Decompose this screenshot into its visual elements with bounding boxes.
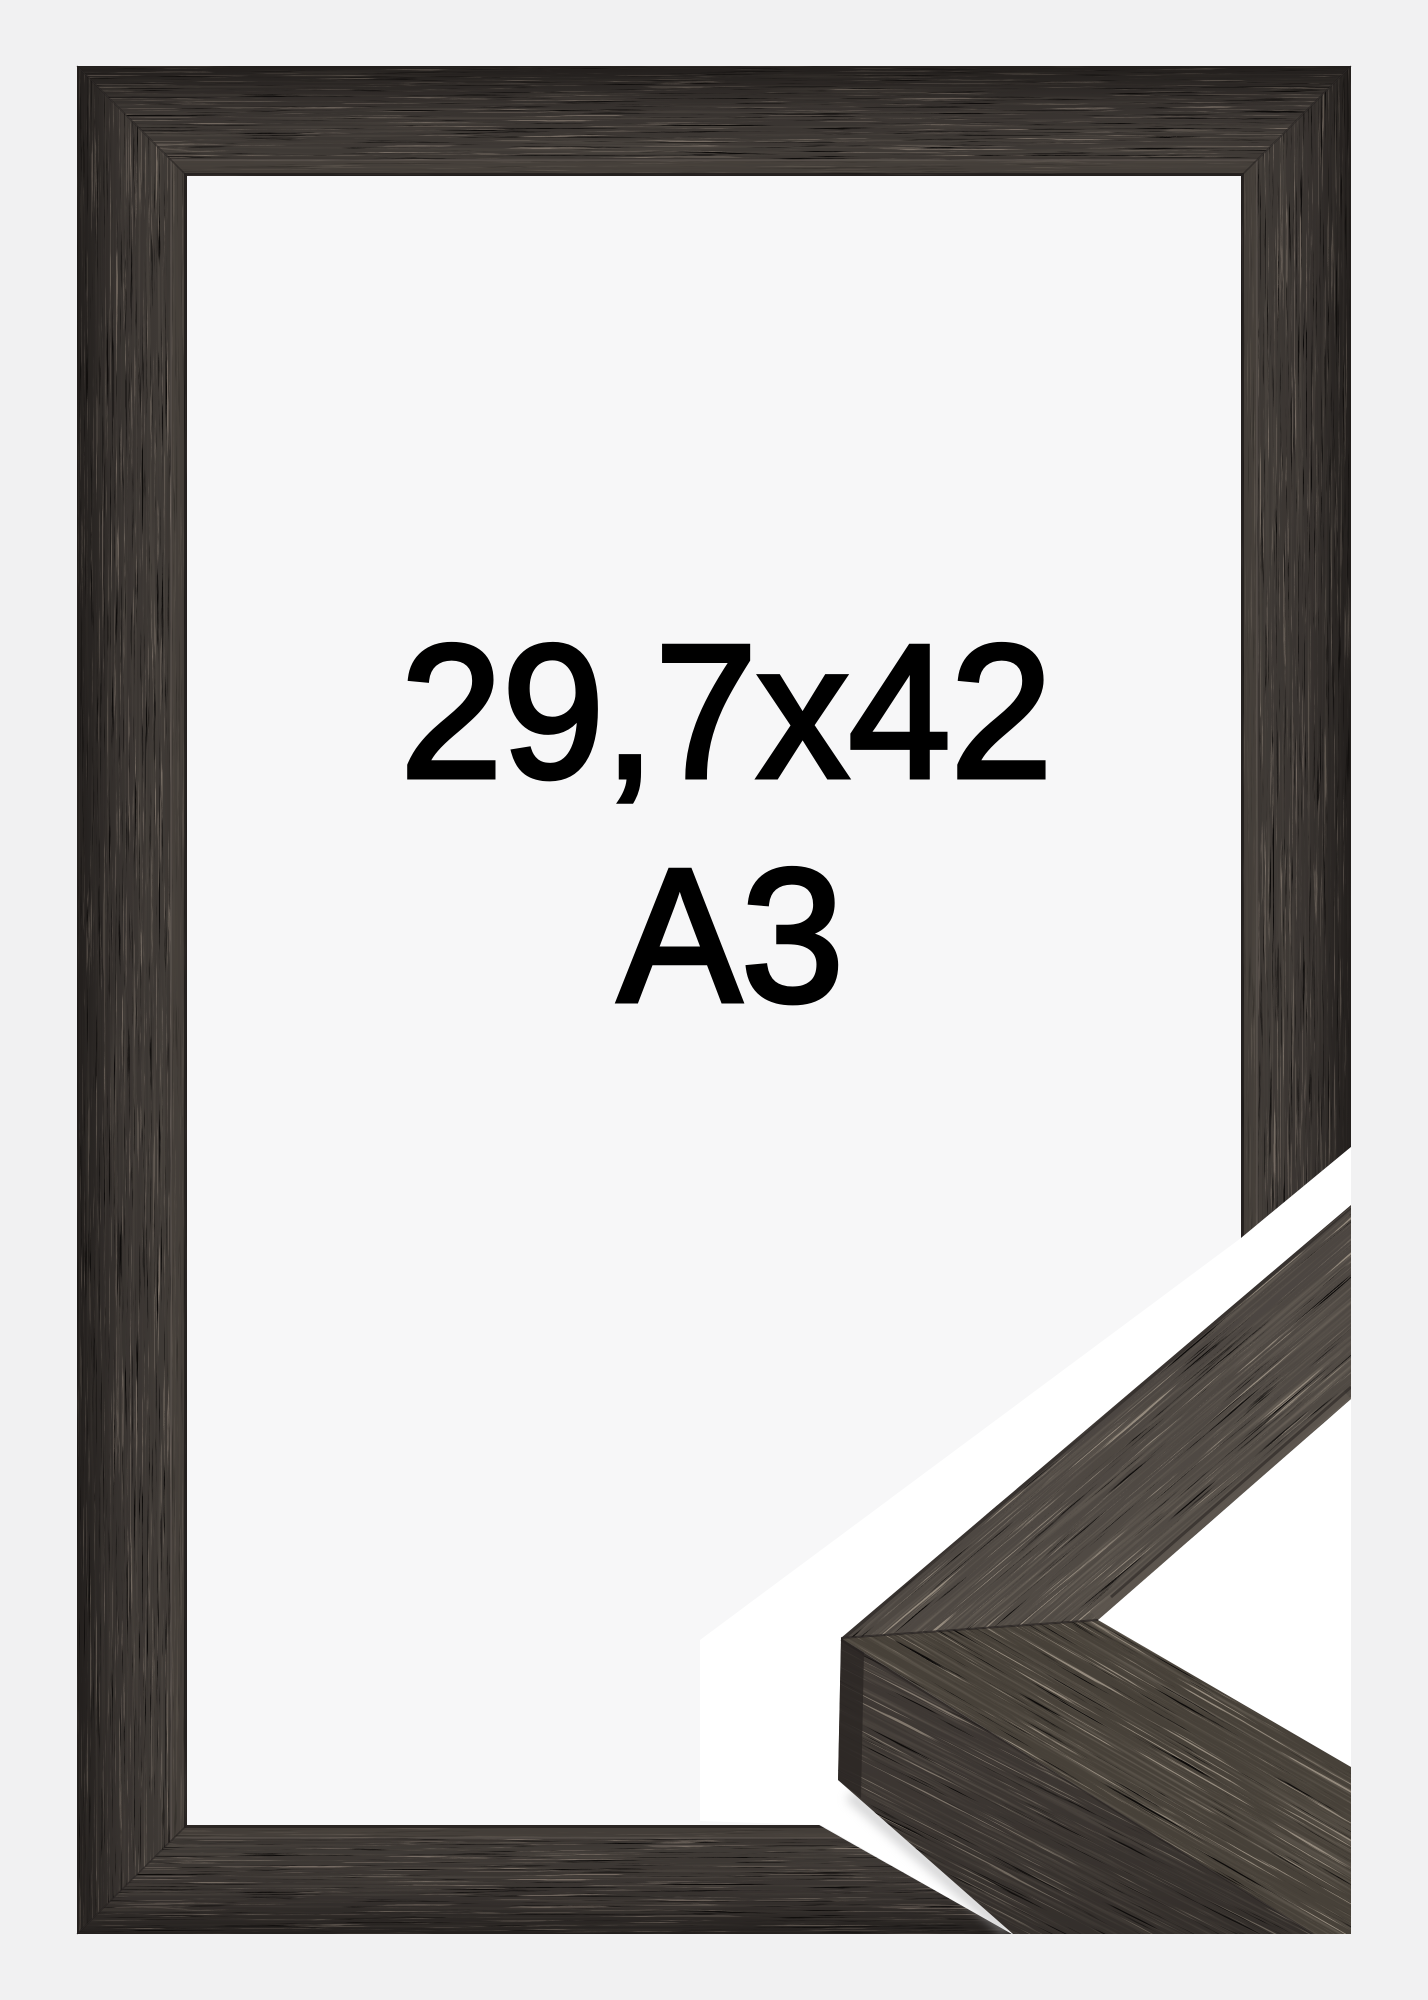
svg-text:A3: A3 <box>618 829 844 1042</box>
svg-text:29,7x42: 29,7x42 <box>400 605 1052 818</box>
